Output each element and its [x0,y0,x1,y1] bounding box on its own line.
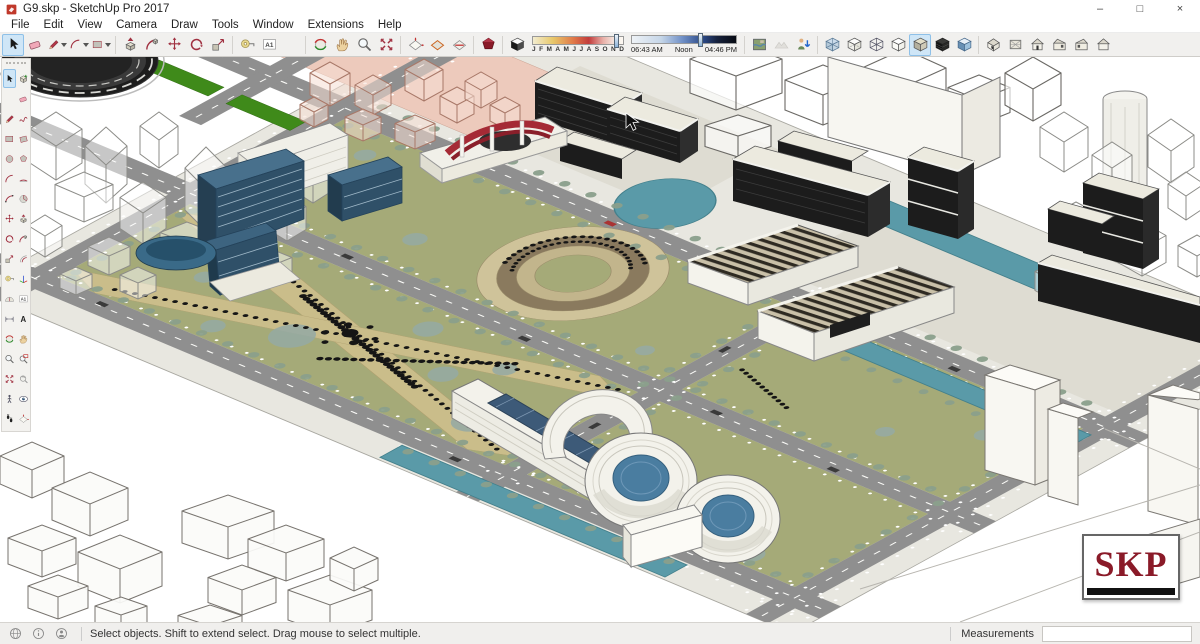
time-slider-track[interactable] [631,35,737,44]
tape-measure-icon [239,36,256,53]
warehouse-icon [480,36,497,53]
photo-textures-icon [795,36,812,53]
scale-icon [4,253,15,265]
rotate-button[interactable] [3,229,16,248]
text-icon [18,293,29,305]
select-icon [5,36,22,53]
section-display-icon [429,36,446,53]
line-dropdown[interactable] [61,43,67,47]
zoom-button[interactable] [3,349,16,368]
menu-tools[interactable]: Tools [205,19,246,31]
toolbar-separator [473,36,474,54]
move-icon [166,36,183,53]
move-icon [4,213,15,225]
toolbar-separator [978,36,979,54]
noon-label: Noon [675,45,693,54]
measurements-label: Measurements [961,628,1034,640]
credits-icon[interactable] [31,626,46,641]
text-button[interactable] [17,289,30,308]
shaded-icon [912,36,929,53]
warehouse-button[interactable] [477,34,499,56]
section-cuts-button[interactable] [448,34,470,56]
minimize-button[interactable]: – [1080,0,1120,18]
menu-file[interactable]: File [4,19,37,31]
arc-icon [4,173,15,185]
monochrome-button[interactable] [953,34,975,56]
toolbar-separator [232,36,233,54]
shadow-date-slider[interactable]: JFMAMJJASOND [532,36,624,53]
line-button[interactable] [3,109,16,128]
iso-view-button[interactable] [982,34,1004,56]
maximize-button[interactable]: □ [1120,0,1160,18]
viewport-canvas[interactable] [0,57,1200,622]
hidden-line-button[interactable] [887,34,909,56]
toolbar-separator [744,36,745,54]
polygon-button[interactable] [17,149,30,168]
text-icon [261,36,278,53]
rectangle-icon [91,36,104,53]
pan-icon [18,333,29,345]
shadow-controls: JFMAMJJASOND 06:43 AM Noon 04:46 PM [528,35,741,54]
month-letter: J [532,46,536,53]
text-button[interactable] [258,34,280,56]
eraser-button[interactable] [24,34,46,56]
look-around-button[interactable] [17,389,30,408]
right-view-icon [1051,36,1068,53]
right-view-button[interactable] [1048,34,1070,56]
toolbar-separator [502,36,503,54]
status-divider [81,627,82,641]
title-bar: G9.skp - SketchUp Pro 2017 – □ × [0,0,1200,18]
offset-icon [18,253,29,265]
toolbar-left-groups [2,34,528,56]
push-pull-icon [18,213,29,225]
eraser-icon [18,93,29,105]
orbit-icon [312,36,329,53]
pan-icon [334,36,351,53]
scale-button[interactable] [3,249,16,268]
paint-bucket-icon [283,36,300,53]
sketchup-logo-icon [5,3,18,16]
back-edges-icon [846,36,863,53]
time-slider-thumb[interactable] [698,33,703,47]
menu-help[interactable]: Help [371,19,409,31]
month-letters: JFMAMJJASOND [532,46,624,53]
line-icon [4,113,15,125]
toggle-terrain-button[interactable] [770,34,792,56]
sketchup-window: G9.skp - SketchUp Pro 2017 – □ × FileEdi… [0,0,1200,644]
wireframe-icon [868,36,885,53]
palette-grid [3,69,29,428]
status-bar: Select objects. Shift to extend select. … [0,622,1200,644]
month-letter: A [587,46,592,53]
scale-button[interactable] [207,34,229,56]
menu-view[interactable]: View [70,19,109,31]
orbit-button[interactable] [309,34,331,56]
push-pull-button[interactable] [17,209,30,228]
toggle-terrain-icon [773,36,790,53]
close-button[interactable]: × [1160,0,1200,18]
toggle-shadows-button[interactable] [506,34,528,56]
status-message: Select objects. Shift to extend select. … [90,628,421,640]
photo-textures-button[interactable] [792,34,814,56]
push-pull-button[interactable] [119,34,141,56]
arc-icon [69,36,82,53]
line-button[interactable] [46,34,68,56]
top-view-icon [1007,36,1024,53]
protractor-icon [4,293,15,305]
month-letter: M [564,46,569,53]
move-button[interactable] [3,209,16,228]
sunrise-time: 06:43 AM [631,45,663,54]
menu-window[interactable]: Window [246,19,301,31]
left-view-icon [1073,36,1090,53]
protractor-button[interactable] [3,289,16,308]
back-view-icon [1095,36,1112,53]
arc-button[interactable] [3,169,16,188]
tape-measure-button[interactable] [3,269,16,288]
rotate-icon [188,36,205,53]
left-view-button[interactable] [1070,34,1092,56]
menu-bar: FileEditViewCameraDrawToolsWindowExtensi… [0,18,1200,33]
tape-measure-button[interactable] [236,34,258,56]
toolbar-separator [400,36,401,54]
front-view-button[interactable] [1026,34,1048,56]
x-ray-icon [824,36,841,53]
walk-icon [4,413,15,425]
look-around-icon [18,393,29,405]
hidden-line-icon [890,36,907,53]
position-camera-button[interactable] [3,389,16,408]
measurements-divider [950,627,951,641]
pie-button[interactable] [17,189,30,208]
menu-draw[interactable]: Draw [164,19,205,31]
walk-button[interactable] [3,409,16,428]
position-camera-icon [4,393,15,405]
toolbar-separator [817,36,818,54]
make-component-icon [18,73,29,85]
line-icon [47,36,60,53]
month-letter: D [619,46,624,53]
pan-button[interactable] [17,329,30,348]
rotated-rectangle-icon [18,133,29,145]
zoom-extents-button[interactable] [375,34,397,56]
skp-watermark: SKP [1082,534,1180,600]
toggle-shadows-icon [509,36,526,53]
window-title: G9.skp - SketchUp Pro 2017 [23,3,1080,15]
zoom-icon [4,353,15,365]
section-plane-button[interactable] [17,409,30,428]
circle-icon [4,153,15,165]
circle-button[interactable] [3,149,16,168]
toolbar-right-groups [741,34,1114,56]
push-pull-icon [122,36,139,53]
add-location-button[interactable] [748,34,770,56]
3d-text-button[interactable] [17,309,30,328]
offset-button[interactable] [17,249,30,268]
arc-dropdown[interactable] [83,43,89,47]
month-letter: S [595,46,599,53]
section-cuts-icon [451,36,468,53]
back-view-button[interactable] [1092,34,1114,56]
zoom-extents-button[interactable] [3,369,16,388]
menu-edit[interactable]: Edit [37,19,71,31]
three-point-arc-icon [4,193,15,205]
wireframe-city-bottom [0,442,378,622]
date-slider-thumb[interactable] [614,34,619,48]
3d-viewport[interactable]: SKP [0,57,1200,622]
3d-text-icon [18,313,29,325]
follow-me-button[interactable] [141,34,163,56]
section-plane-button[interactable] [404,34,426,56]
paint-bucket-button[interactable] [3,89,16,108]
axes-button[interactable] [17,269,30,288]
axes-icon [18,273,29,285]
scale-icon [210,36,227,53]
month-letter: A [555,46,560,53]
two-point-arc-button[interactable] [17,169,30,188]
date-slider-track[interactable] [532,36,624,45]
paint-bucket-icon [4,93,15,105]
palette-grip[interactable] [6,62,26,66]
shaded-with-textures-icon [934,36,951,53]
watermark-text: SKP [1094,543,1167,585]
shadow-time-slider[interactable]: 06:43 AM Noon 04:46 PM [631,35,737,54]
toolbar-separator [115,36,116,54]
x-ray-button[interactable] [821,34,843,56]
zoom-extents-icon [378,36,395,53]
front-view-icon [1029,36,1046,53]
zoom-icon [356,36,373,53]
section-plane-icon [407,36,424,53]
shaded-with-textures-button[interactable] [931,34,953,56]
toolbar-separator [305,36,306,54]
previous-icon [18,373,29,385]
time-labels: 06:43 AM Noon 04:46 PM [631,45,737,54]
rectangle-button[interactable] [90,34,112,56]
select-icon [4,73,15,85]
orbit-button[interactable] [3,329,16,348]
zoom-window-icon [18,353,29,365]
back-edges-button[interactable] [843,34,865,56]
polygon-icon [18,153,29,165]
menu-extensions[interactable]: Extensions [301,19,371,31]
paint-bucket-button[interactable] [280,34,302,56]
select-button[interactable] [3,69,16,88]
orbit-icon [4,333,15,345]
large-tool-set [1,58,31,432]
arc-button[interactable] [68,34,90,56]
monochrome-icon [956,36,973,53]
move-button[interactable] [163,34,185,56]
eraser-button[interactable] [17,89,30,108]
pie-icon [18,193,29,205]
wireframe-button[interactable] [865,34,887,56]
dimension-icon [4,313,15,325]
tape-measure-icon [4,273,15,285]
dimension-button[interactable] [3,309,16,328]
freehand-icon [18,113,29,125]
rectangle-icon [4,133,15,145]
add-location-icon [751,36,768,53]
rotated-rectangle-button[interactable] [17,129,30,148]
zoom-window-button[interactable] [17,349,30,368]
two-point-arc-icon [18,173,29,185]
follow-me-icon [18,233,29,245]
month-letter: M [547,46,552,53]
month-letter: J [572,46,576,53]
zoom-button[interactable] [353,34,375,56]
main-toolbar: JFMAMJJASOND 06:43 AM Noon 04:46 PM [0,33,1200,57]
previous-button[interactable] [17,369,30,388]
rectangle-button[interactable] [3,129,16,148]
rotate-button[interactable] [185,34,207,56]
measurements-input[interactable] [1042,626,1192,642]
eraser-icon [27,36,44,53]
section-plane-icon [18,413,29,425]
sign-in-icon[interactable] [54,626,69,641]
select-button[interactable] [2,34,24,56]
rotate-icon [4,233,15,245]
section-display-button[interactable] [426,34,448,56]
iso-view-icon [985,36,1002,53]
month-letter: J [580,46,584,53]
pan-button[interactable] [331,34,353,56]
follow-me-icon [144,36,161,53]
sunset-time: 04:46 PM [705,45,737,54]
month-letter: O [603,46,608,53]
geolocation-icon[interactable] [8,626,23,641]
rectangle-dropdown[interactable] [105,43,111,47]
follow-me-button[interactable] [17,229,30,248]
top-view-button[interactable] [1004,34,1026,56]
freehand-button[interactable] [17,109,30,128]
month-letter: F [539,46,543,53]
zoom-extents-icon [4,373,15,385]
make-component-button[interactable] [17,69,30,88]
three-point-arc-button[interactable] [3,189,16,208]
shaded-button[interactable] [909,34,931,56]
menu-camera[interactable]: Camera [109,19,164,31]
